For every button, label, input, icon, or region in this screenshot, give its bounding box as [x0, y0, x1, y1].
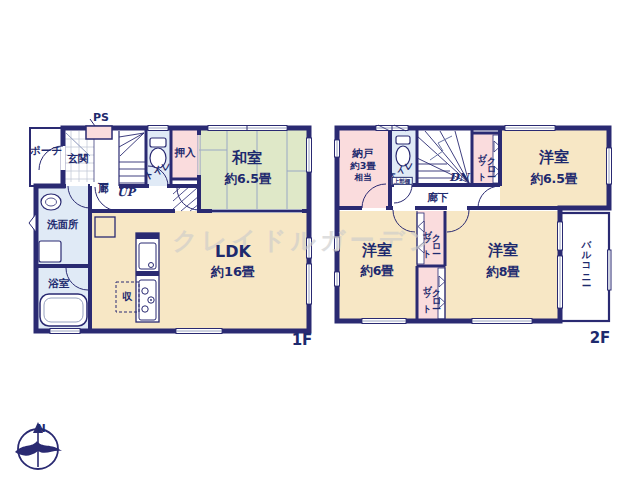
- label-storeroom-size1: 約3畳: [350, 161, 376, 172]
- label-bedroom8-name: 洋室: [488, 242, 518, 259]
- watermark-text: クレイドルガーデン: [155, 224, 455, 257]
- label-bedroom6-size: 約6畳: [360, 264, 394, 278]
- label-hallway-2f: 廊下: [428, 191, 449, 203]
- label-compass-north: N: [36, 423, 45, 436]
- porch: [30, 128, 63, 186]
- label-oshiire: 押入: [175, 146, 196, 158]
- label-bedroom65-name: 洋室: [539, 149, 569, 166]
- label-ps: PS: [93, 112, 109, 125]
- label-closet-topright: クローゼット: [477, 146, 496, 177]
- label-storage: 収: [122, 291, 132, 303]
- label-ldk-size: 約16畳: [211, 265, 255, 280]
- label-balcony: バルコニー: [581, 233, 592, 281]
- label-dn: DN: [449, 172, 469, 185]
- label-closet-mid-lower: クローゼット: [422, 278, 441, 309]
- label-floor2: 2F: [590, 330, 611, 347]
- label-storeroom-name: 納戸: [353, 147, 374, 159]
- label-bedroom6-name: 洋室: [362, 242, 392, 259]
- label-floor1: 1F: [292, 332, 313, 349]
- pipe-space: [86, 126, 112, 139]
- label-washroom: 洗面所: [47, 218, 79, 230]
- bedroom-65: [500, 128, 609, 208]
- label-tatami-name: 和室: [232, 150, 262, 167]
- label-bedroom8-size: 約8畳: [486, 265, 520, 279]
- tatami-room: [199, 128, 309, 211]
- label-hallway-1f: 廊下: [98, 173, 110, 175]
- label-ldk-name: LDK: [215, 243, 251, 261]
- label-closet-mid-upper: クローゼット: [422, 223, 441, 254]
- side-door-mark: [29, 214, 36, 232]
- label-entrance: 玄関: [68, 152, 89, 164]
- label-storeroom-size2: 相当: [355, 173, 372, 183]
- label-bedroom65-size: 約6.5畳: [530, 172, 577, 186]
- label-up: UP: [117, 187, 135, 200]
- label-tatami-size: 約6.5畳: [224, 172, 271, 186]
- label-porch: ポーチ: [30, 144, 62, 156]
- label-bathroom: 浴室: [49, 277, 70, 289]
- floorplan-canvas: クレイドルガーデン ポーチ 玄関 廊下 PS UP トイレ 押入 和室 約6.5…: [0, 0, 640, 480]
- label-toilet-shelf: 上部棚: [392, 177, 413, 185]
- bathtub: [40, 294, 87, 326]
